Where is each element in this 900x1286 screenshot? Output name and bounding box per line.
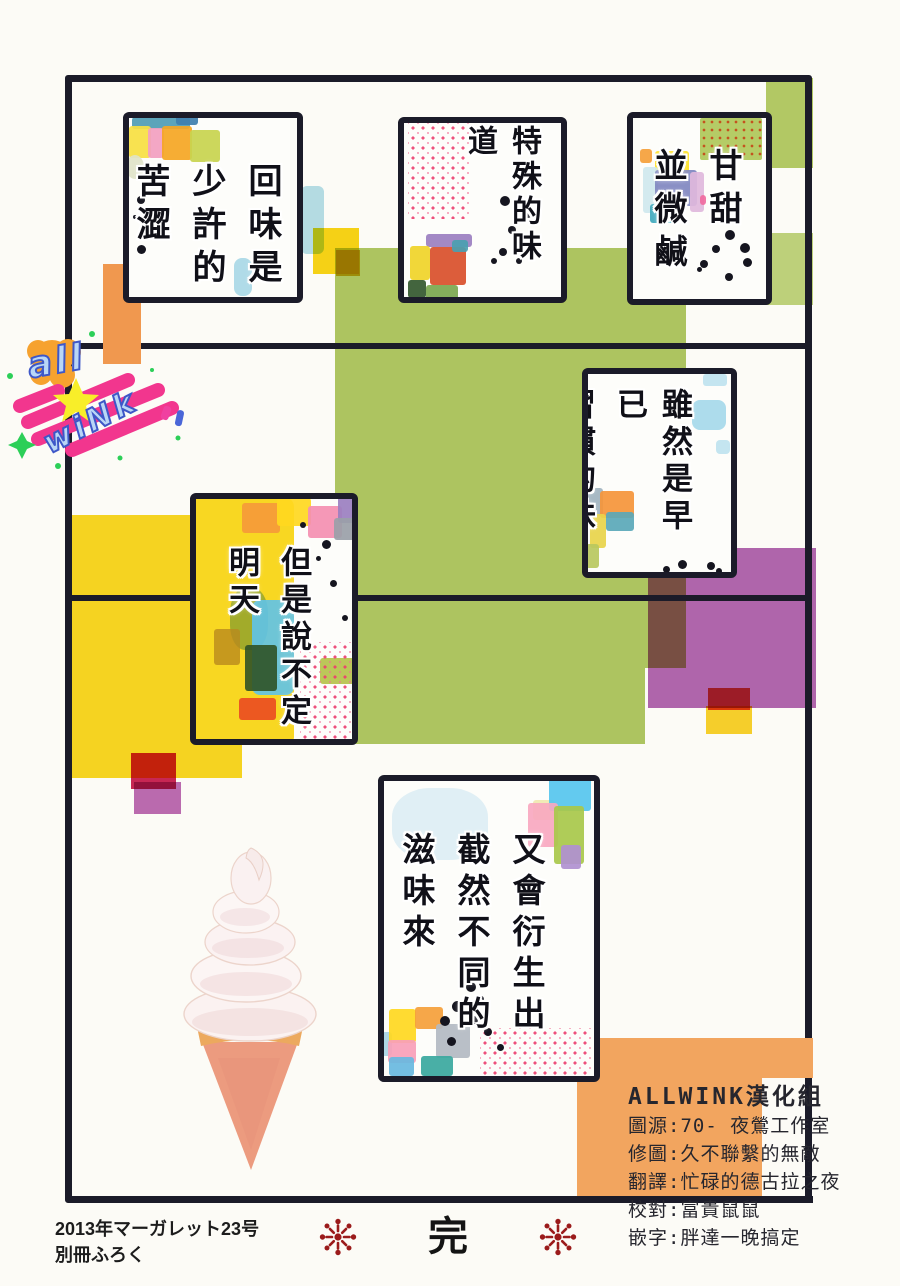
collage-piece: [716, 440, 730, 454]
ink-dot: [300, 522, 306, 528]
credits-line: 修圖:久不聯繫的無敵: [628, 1140, 840, 1168]
green-block-topright-a: [766, 78, 813, 168]
green-block-lower: [335, 668, 645, 744]
orange-block-credits-top: [577, 1038, 813, 1078]
flower-asterisk-icon: [318, 1217, 358, 1257]
ink-dot: [322, 540, 331, 549]
panel-familiar-taste: 雖然是早已 習慣的味道: [582, 368, 737, 578]
ice-cream-illustration: [158, 818, 343, 1178]
magazine-note-line2: 別冊ふろく: [55, 1242, 259, 1268]
manga-page: 回味是 少許的 苦澀 特殊的味道: [0, 0, 900, 1286]
collage-piece: [421, 1056, 453, 1076]
speech-text: 又會衍生出 截然不同的 滋味來: [385, 832, 550, 1037]
ochre-square-small: [336, 250, 360, 276]
speech-text: 特殊的味道: [450, 125, 545, 297]
ink-dot: [447, 1037, 456, 1046]
panel-aftertaste: 回味是 少許的 苦澀: [123, 112, 303, 303]
magazine-note: 2013年マーガレット23号 別冊ふろく: [55, 1216, 259, 1268]
credits-line: 嵌字:胖達一晚搞定: [628, 1224, 840, 1252]
ink-dot: [352, 565, 358, 573]
credits-line: 翻譯:忙碌的德古拉之夜: [628, 1168, 840, 1196]
collage-piece: [242, 503, 280, 533]
credits-line: 圖源:70- 夜鶯工作室: [628, 1112, 840, 1140]
collage-piece: [162, 126, 192, 160]
collage-piece: [277, 498, 311, 526]
cyan-patch-right-of-panel1: [301, 186, 324, 254]
speech-text: 但是說不定 明天: [212, 546, 316, 731]
ink-dot: [497, 1044, 504, 1051]
credits-block: ALLWINK漢化組 圖源:70- 夜鶯工作室 修圖:久不聯繫的無敵 翻譯:忙碌…: [628, 1082, 840, 1252]
ink-dot: [316, 556, 321, 561]
collage-piece: [703, 374, 727, 386]
end-mark: 完: [428, 1215, 468, 1259]
collage-piece: [408, 280, 426, 298]
collage-piece: [190, 130, 220, 162]
ink-dot: [352, 515, 358, 523]
collage-piece: [410, 246, 430, 280]
panel-different-flavor: 又會衍生出 截然不同的 滋味來: [378, 775, 600, 1082]
panel-special-flavor: 特殊的味道: [398, 117, 567, 303]
ink-dot: [330, 580, 337, 587]
ink-dot: [342, 615, 348, 621]
collage-piece: [692, 400, 726, 430]
speech-text: 甘甜 並微鹹: [637, 148, 747, 277]
collage-piece: [561, 845, 581, 869]
logo-word1: all: [24, 336, 88, 386]
ink-dot: [352, 597, 358, 605]
gutter-line-2: [65, 595, 812, 601]
flower-asterisk-icon: [538, 1217, 578, 1257]
ink-dot: [707, 562, 715, 570]
panel-but-maybe-tomorrow: 但是說不定 明天: [190, 493, 358, 745]
speech-text: 雖然是早已 習慣的味道: [582, 388, 697, 572]
panel-sweet-salty: 甘甜 並微鹹: [627, 112, 772, 305]
collage-piece: [176, 115, 198, 125]
collage-piece: [334, 518, 358, 540]
magazine-note-line1: 2013年マーガレット23号: [55, 1216, 259, 1242]
credits-line: 校對:富貴鼠鼠: [628, 1196, 840, 1224]
purple-square-small: [134, 782, 181, 814]
yellow-square-bottomright: [706, 706, 752, 734]
allwink-logo: all wiNk: [0, 318, 198, 476]
speech-text: 回味是 少許的 苦澀: [123, 163, 287, 292]
credits-title: ALLWINK漢化組: [628, 1082, 840, 1112]
ink-dot: [716, 568, 722, 574]
collage-piece: [389, 1057, 414, 1076]
end-mark-row: 完: [318, 1212, 578, 1262]
